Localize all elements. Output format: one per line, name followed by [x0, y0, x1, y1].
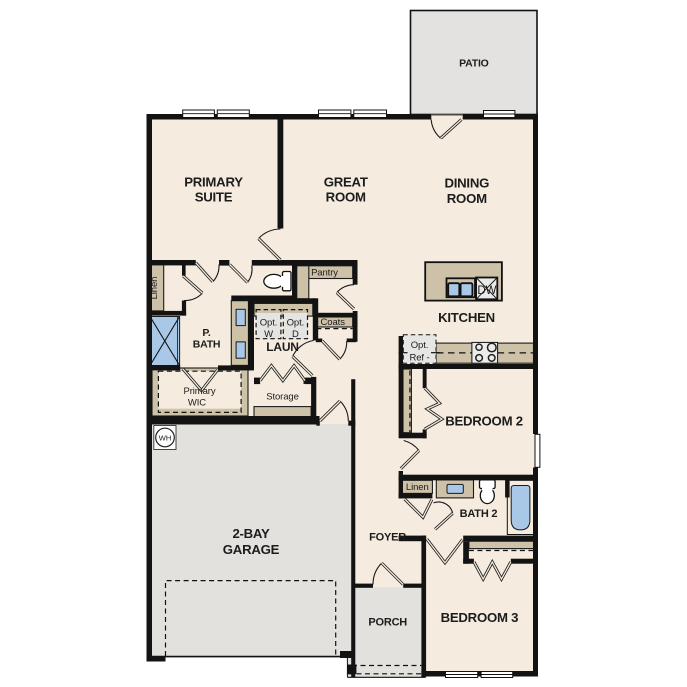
svg-text:GREAT: GREAT: [324, 174, 368, 189]
svg-text:SUITE: SUITE: [195, 190, 233, 205]
svg-text:DW: DW: [477, 285, 496, 297]
svg-text:Ref -: Ref -: [409, 353, 429, 364]
svg-text:ROOM: ROOM: [326, 190, 366, 205]
svg-text:BEDROOM 2: BEDROOM 2: [445, 413, 523, 428]
svg-text:2-BAY: 2-BAY: [232, 526, 270, 541]
svg-text:PORCH: PORCH: [368, 616, 407, 628]
svg-text:ROOM: ROOM: [447, 191, 487, 206]
svg-text:Opt.: Opt.: [287, 318, 305, 329]
svg-text:BATH 2: BATH 2: [460, 508, 498, 520]
svg-text:Coats: Coats: [321, 317, 346, 328]
svg-text:GARAGE: GARAGE: [223, 542, 280, 557]
svg-text:Linen: Linen: [149, 277, 160, 300]
svg-text:FOYER: FOYER: [369, 532, 406, 544]
svg-text:PATIO: PATIO: [459, 58, 489, 70]
svg-text:Opt.: Opt.: [260, 318, 278, 329]
svg-text:D: D: [292, 329, 299, 340]
svg-text:PRIMARY: PRIMARY: [184, 174, 243, 189]
svg-text:WIC: WIC: [188, 397, 206, 408]
svg-text:Primary: Primary: [183, 386, 215, 397]
svg-text:W: W: [264, 329, 273, 340]
svg-text:BEDROOM 3: BEDROOM 3: [441, 610, 519, 625]
svg-text:Pantry: Pantry: [311, 267, 338, 278]
svg-text:WH: WH: [159, 434, 172, 443]
svg-text:DINING: DINING: [444, 176, 489, 191]
svg-text:Linen: Linen: [406, 482, 429, 493]
svg-text:P.: P.: [202, 327, 210, 339]
svg-text:BATH: BATH: [193, 339, 221, 351]
svg-text:LAUN: LAUN: [266, 340, 299, 354]
svg-text:KITCHEN: KITCHEN: [438, 310, 495, 325]
svg-text:Opt.: Opt.: [411, 340, 429, 351]
svg-text:Storage: Storage: [266, 391, 299, 402]
